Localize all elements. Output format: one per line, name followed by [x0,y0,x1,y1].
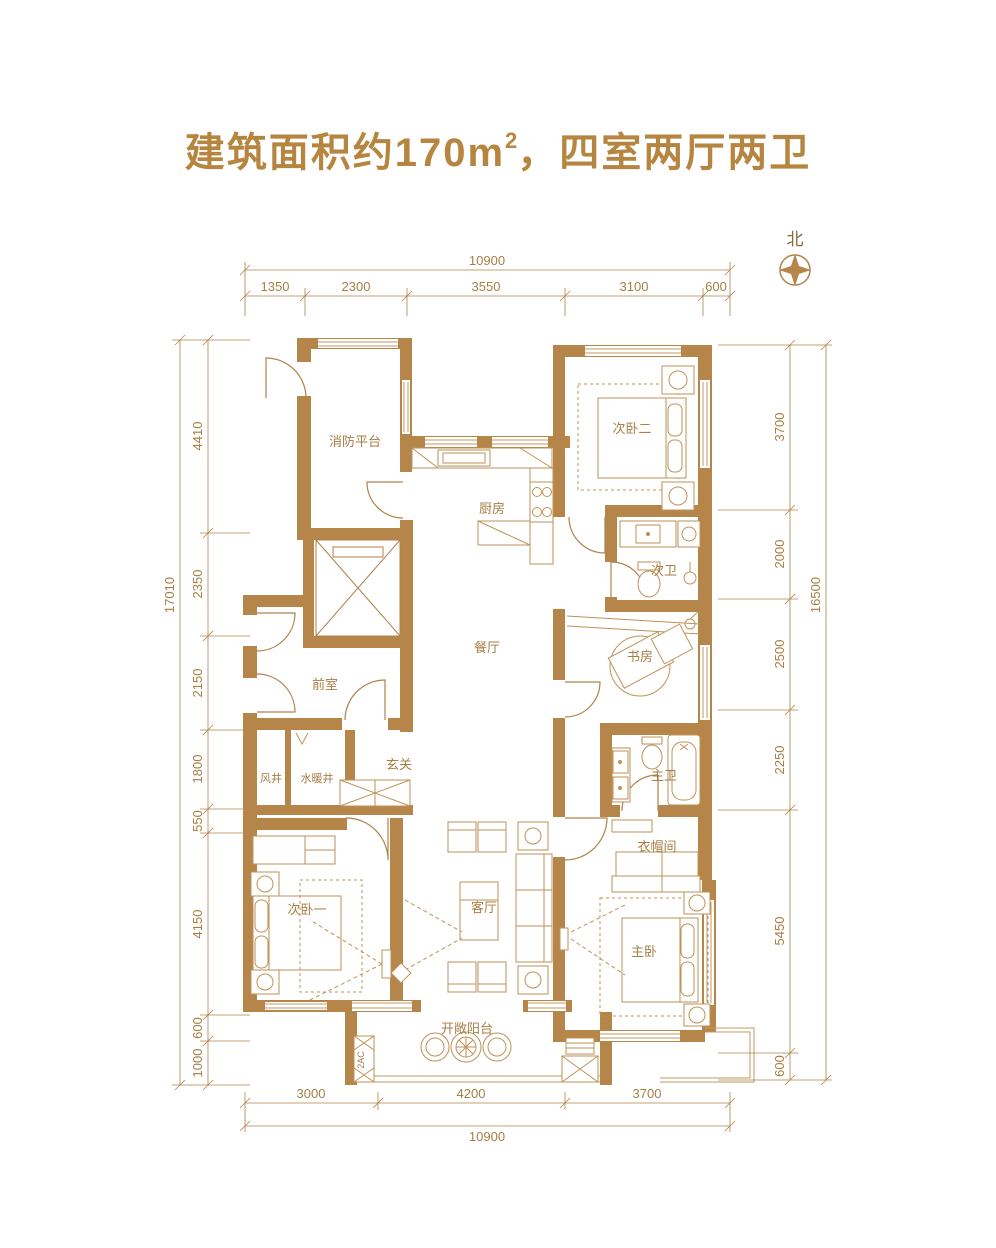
door-entry-main [345,680,385,720]
dim-left-seg-1: 2350 [190,570,205,599]
north-label: 北 [787,230,804,249]
dim-top-total: 10900 [469,253,505,268]
dim-left-total: 17010 [162,577,177,613]
title-suffix: ，四室两厅两卫 [517,131,811,175]
dim-top-seg-4: 600 [705,279,727,294]
dim-right-seg-5: 600 [772,1055,787,1077]
dim-bottom-seg-2: 3700 [633,1086,662,1101]
door-fire-platform-ext [266,358,306,398]
room-label-balcony: 开敞阳台 [441,1021,493,1036]
dim-right-seg-0: 3700 [772,413,787,442]
dim-right-total: 16500 [808,577,823,613]
bedroom1-furniture [251,836,391,1000]
compass-star-icon [779,254,811,286]
door-front-room-2 [257,674,295,712]
dim-bottom-total: 10900 [469,1129,505,1144]
room-label-front-room: 前室 [312,677,338,692]
dim-top-seg-2: 3550 [472,279,501,294]
dim-top-seg-3: 3100 [620,279,649,294]
floorplan-drawing: 消防平台 厨房 次卧二 次卫 餐厅 书房 前室 玄关 风井 水暖井 主卫 衣帽间… [0,0,996,1248]
dim-top-seg-1: 2300 [342,279,371,294]
dim-right-seg-1: 2000 [772,540,787,569]
room-label-bedroom2: 次卧二 [612,421,651,436]
dim-left-seg-5: 4150 [190,910,205,939]
page-title: 建筑面积约170m2，四室两厅两卫 [0,120,996,178]
room-label-bedroom1: 次卧一 [287,902,326,917]
room-label-study: 书房 [627,649,653,664]
floorplan-page: 建筑面积约170m2，四室两厅两卫 [0,0,996,1248]
dim-left-seg-2: 2150 [190,669,205,698]
elevator-shaft [316,540,400,636]
bath2-fixtures [620,521,700,597]
dim-left-seg-6: 600 [190,1017,205,1039]
room-label-master-bedroom: 主卧 [631,944,657,959]
room-label-living: 客厅 [471,900,497,915]
door-bedroom1 [346,818,388,860]
dim-top-seg-0: 1350 [261,279,290,294]
dim-right-seg-2: 2500 [772,640,787,669]
title-unit: m [467,131,505,175]
room-label-bath2: 次卫 [651,563,677,578]
dim-left-seg-4: 550 [190,810,205,832]
dim-right-seg-4: 5450 [772,917,787,946]
dim-bottom-seg-1: 4200 [457,1086,486,1101]
door-fire-platform [367,482,403,518]
door-master-bedroom [565,818,607,860]
dim-left-seg-7: 1000 [190,1049,205,1078]
dim-left-seg-3: 1800 [190,755,205,784]
north-compass: 北 [779,230,811,286]
dim-right-seg-3: 2250 [772,746,787,775]
title-prefix: 建筑面积约170 [185,131,468,175]
door-study [565,682,600,717]
dim-bottom-seg-0: 3000 [297,1086,326,1101]
room-label-ac-shaft: 2AC [356,1051,366,1069]
room-label-entry: 玄关 [386,757,412,772]
room-label-master-bath: 主卫 [651,768,677,783]
bedroom2-furniture [578,366,694,510]
title-superscript: 2 [505,128,517,153]
door-bedroom2 [569,517,605,553]
room-label-cloakroom: 衣帽间 [637,839,676,854]
room-label-dining: 餐厅 [474,640,500,655]
dim-left-seg-0: 4410 [190,422,205,451]
room-label-kitchen: 厨房 [479,501,505,516]
door-front-room-1 [257,613,295,651]
room-label-plumbing-shaft: 水暖井 [301,771,334,785]
room-label-fire-platform: 消防平台 [329,434,381,449]
room-label-wind-shaft: 风井 [260,771,282,785]
